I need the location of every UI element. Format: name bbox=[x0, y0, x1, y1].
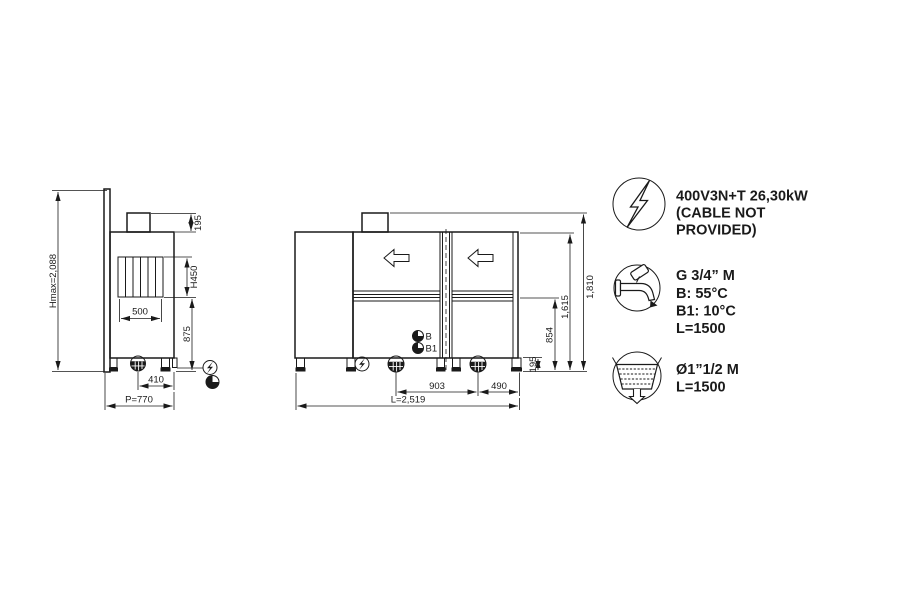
front-module-junction bbox=[440, 229, 452, 371]
side-view-drawing: Hmax=2,088 195 H450 500 875 bbox=[48, 189, 219, 410]
inlet-b-label: B bbox=[426, 332, 432, 343]
dim-drain-to-edge: 490 bbox=[491, 381, 507, 392]
technical-drawing: Hmax=2,088 195 H450 500 875 bbox=[0, 0, 900, 600]
legend-water-line1: G 3/4” M bbox=[676, 268, 735, 284]
side-electric-icon bbox=[203, 361, 217, 375]
side-back-panel bbox=[104, 189, 110, 372]
dim-leg-height: 195 bbox=[528, 357, 539, 373]
dim-body-height: 1,615 bbox=[560, 295, 571, 319]
dim-lower-height: 875 bbox=[182, 326, 193, 342]
legend-water-line4: L=1500 bbox=[676, 321, 726, 337]
direction-arrow-left-module bbox=[384, 250, 409, 267]
dim-500-group: 500 bbox=[120, 299, 162, 322]
front-legs bbox=[296, 358, 523, 372]
legend-electric-line3: PROVIDED) bbox=[676, 223, 757, 239]
front-chimney bbox=[362, 213, 388, 232]
side-chimney bbox=[127, 213, 150, 232]
legend-water-line2: B: 55°C bbox=[676, 286, 728, 302]
front-electric-icon bbox=[355, 357, 369, 371]
dim-opening-height: H450 bbox=[189, 266, 200, 289]
legend: 400V3N+T 26,30kW (CABLE NOT PROVIDED) G … bbox=[613, 178, 809, 404]
lightning-bolt-icon bbox=[613, 178, 665, 230]
water-tap-icon bbox=[614, 264, 660, 311]
dim-410-group: 410 bbox=[138, 372, 174, 390]
front-left-table bbox=[295, 232, 353, 358]
inlet-b1-icon bbox=[413, 343, 424, 354]
legend-water-line3: B1: 10°C bbox=[676, 304, 736, 320]
dim-hmax: Hmax=2,088 bbox=[48, 254, 59, 308]
dim-hmax-group: Hmax=2,088 bbox=[48, 191, 107, 372]
dim-490-group: 490 bbox=[480, 373, 520, 397]
legend-drain-line2: L=1500 bbox=[676, 380, 726, 396]
dim-drain-offset: 410 bbox=[148, 375, 164, 386]
dim-opening-width: 500 bbox=[132, 307, 148, 318]
front-view-drawing: B B1 bbox=[295, 213, 596, 410]
inlet-b-icon bbox=[413, 331, 424, 342]
dim-worktop-height: 854 bbox=[545, 327, 556, 343]
side-water-connection-icon bbox=[206, 376, 219, 389]
legend-electric-line1: 400V3N+T 26,30kW bbox=[676, 189, 808, 205]
dim-overall-height: 1,810 bbox=[585, 275, 596, 299]
dim-chimney-height: 195 bbox=[193, 215, 204, 231]
side-curtain-opening bbox=[118, 257, 163, 297]
dim-length-group: L=2,519 bbox=[296, 373, 520, 410]
front-conveyor-band bbox=[353, 291, 513, 301]
dim-903-group: 903 bbox=[396, 373, 478, 397]
side-body bbox=[110, 232, 174, 358]
inlet-b1-label: B1 bbox=[426, 344, 438, 355]
dim-h450-group: H450 bbox=[164, 257, 200, 298]
drain-basin-icon bbox=[613, 352, 662, 404]
dim-side-195-group: 195 bbox=[151, 214, 204, 233]
dim-drain-spacing: 903 bbox=[429, 381, 445, 392]
legend-electric-line2: (CABLE NOT bbox=[676, 206, 766, 222]
dim-875-group: 875 bbox=[176, 299, 196, 372]
dim-depth: P=770 bbox=[125, 395, 153, 406]
legend-drain-line1: Ø1”1/2 M bbox=[676, 362, 739, 378]
dim-length: L=2,519 bbox=[391, 395, 426, 406]
direction-arrow-right-module bbox=[468, 250, 493, 267]
